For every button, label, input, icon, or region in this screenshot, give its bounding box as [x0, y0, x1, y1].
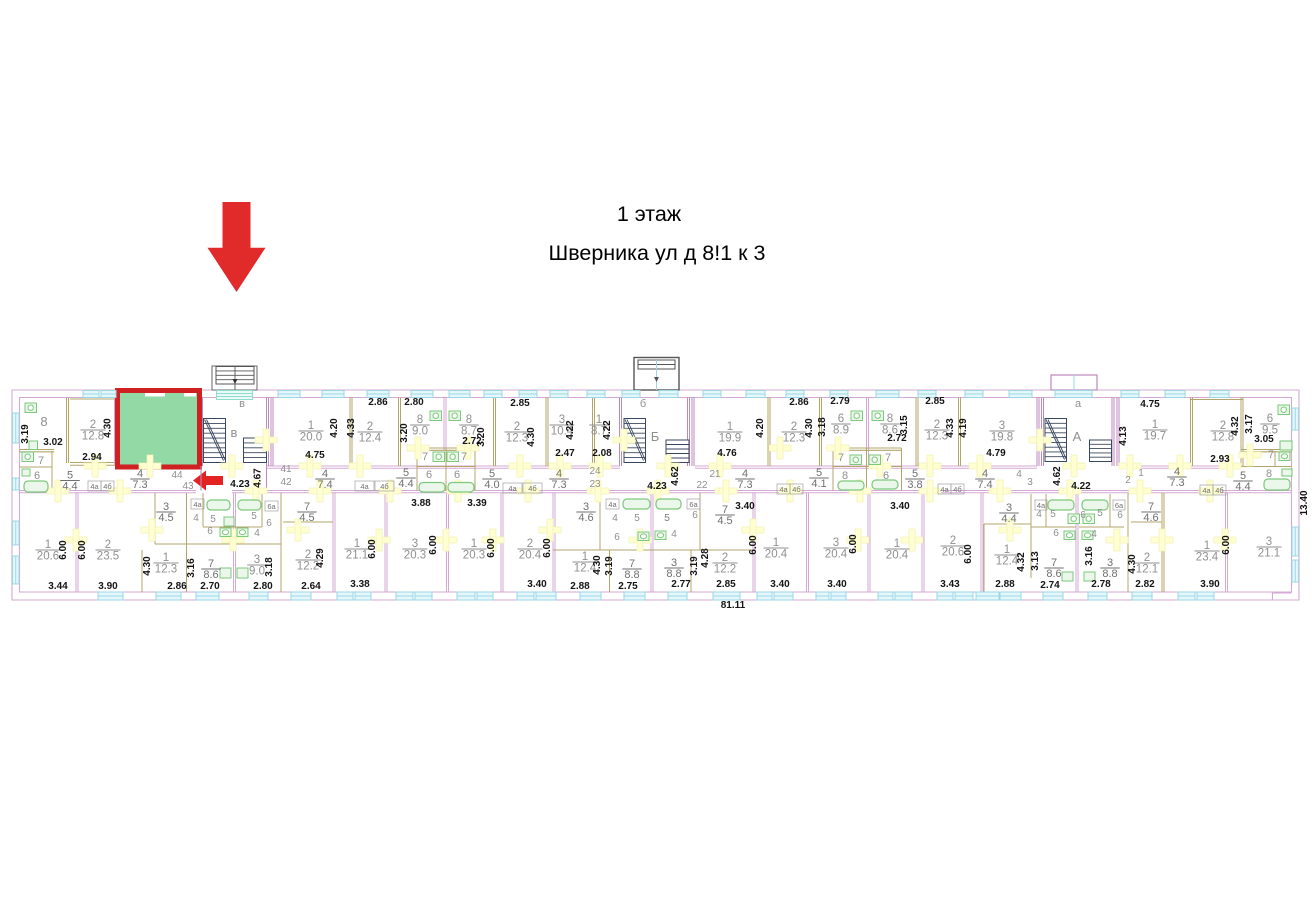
svg-text:4.22: 4.22: [602, 420, 613, 440]
svg-text:4а: 4а: [508, 484, 517, 493]
svg-text:3.19: 3.19: [604, 556, 615, 576]
svg-text:2.80: 2.80: [253, 581, 273, 592]
svg-text:2.88: 2.88: [570, 581, 590, 592]
svg-text:6: 6: [34, 470, 40, 482]
svg-text:6а: 6а: [1115, 501, 1124, 510]
svg-text:4.33: 4.33: [346, 418, 357, 438]
svg-text:4а: 4а: [608, 500, 617, 509]
svg-text:6.00: 6.00: [58, 540, 69, 560]
svg-text:3.05: 3.05: [1254, 434, 1274, 445]
svg-text:3.90: 3.90: [1200, 579, 1220, 590]
svg-text:21: 21: [709, 469, 721, 480]
svg-text:4.0: 4.0: [484, 479, 499, 491]
svg-text:9.0: 9.0: [412, 426, 428, 438]
svg-text:3.02: 3.02: [43, 437, 63, 448]
svg-text:4а: 4а: [193, 500, 202, 509]
svg-text:43: 43: [182, 481, 194, 492]
svg-text:Шверника ул д 8!1 к 3: Шверника ул д 8!1 к 3: [548, 241, 765, 265]
svg-text:8.6: 8.6: [203, 569, 218, 581]
svg-text:2.85: 2.85: [716, 579, 736, 590]
svg-text:4.22: 4.22: [565, 420, 576, 440]
svg-text:1: 1: [471, 538, 477, 550]
svg-text:1: 1: [45, 539, 51, 551]
svg-text:3.8: 3.8: [907, 479, 922, 491]
svg-text:22: 22: [696, 480, 708, 491]
svg-text:4.30: 4.30: [804, 418, 815, 438]
svg-text:4.30: 4.30: [592, 555, 603, 575]
svg-text:44: 44: [171, 470, 183, 481]
svg-text:1: 1: [308, 420, 314, 432]
svg-text:6.00: 6.00: [848, 534, 859, 554]
svg-text:8: 8: [842, 470, 848, 482]
svg-text:2.75: 2.75: [618, 581, 638, 592]
svg-text:12.3: 12.3: [783, 433, 805, 445]
svg-text:4.67: 4.67: [253, 468, 264, 488]
svg-text:3.16: 3.16: [1084, 546, 1095, 566]
svg-text:7: 7: [838, 452, 844, 464]
svg-text:6.00: 6.00: [428, 535, 439, 555]
svg-text:1: 1: [582, 551, 588, 563]
svg-text:4.5: 4.5: [717, 515, 732, 527]
svg-text:7: 7: [461, 451, 467, 463]
svg-text:6а: 6а: [689, 500, 698, 509]
svg-text:а: а: [1075, 398, 1082, 410]
svg-text:4.23: 4.23: [647, 481, 667, 492]
svg-text:8.8: 8.8: [624, 569, 639, 581]
svg-text:3.39: 3.39: [467, 498, 487, 509]
svg-text:4а: 4а: [1202, 486, 1211, 495]
svg-text:1: 1: [727, 421, 733, 433]
svg-text:6.00: 6.00: [963, 544, 974, 564]
svg-text:2: 2: [305, 549, 311, 561]
svg-text:12.4: 12.4: [359, 433, 382, 445]
svg-text:7.3: 7.3: [737, 479, 752, 491]
svg-text:3.43: 3.43: [940, 579, 960, 590]
svg-text:2.72: 2.72: [462, 436, 482, 447]
svg-text:2: 2: [722, 552, 728, 564]
svg-text:2: 2: [791, 421, 797, 433]
svg-text:4.75: 4.75: [305, 450, 325, 461]
svg-text:4а: 4а: [90, 482, 99, 491]
svg-text:7: 7: [1268, 449, 1274, 461]
svg-text:20.4: 20.4: [825, 549, 848, 561]
svg-text:4.32: 4.32: [1230, 416, 1241, 436]
svg-text:2.64: 2.64: [301, 581, 321, 592]
svg-text:6: 6: [207, 526, 213, 537]
svg-text:3.20: 3.20: [399, 423, 410, 443]
svg-text:2: 2: [514, 421, 520, 433]
svg-text:4б: 4б: [792, 485, 800, 494]
svg-text:3.16: 3.16: [186, 558, 197, 578]
svg-text:5: 5: [251, 511, 257, 522]
svg-text:4.79: 4.79: [986, 448, 1006, 459]
svg-text:7: 7: [38, 455, 44, 467]
svg-text:3.90: 3.90: [98, 581, 118, 592]
svg-text:3: 3: [1027, 477, 1033, 488]
svg-text:1: 1: [773, 537, 779, 549]
svg-text:2.74: 2.74: [1040, 580, 1060, 591]
svg-text:6.00: 6.00: [1221, 535, 1232, 555]
svg-text:8: 8: [40, 414, 47, 429]
svg-text:4.4: 4.4: [1235, 481, 1250, 493]
svg-text:12.1: 12.1: [1136, 564, 1158, 576]
svg-text:4.6: 4.6: [1143, 512, 1158, 524]
svg-text:6: 6: [266, 518, 272, 529]
svg-text:2.93: 2.93: [1210, 454, 1230, 465]
svg-text:3.13: 3.13: [1030, 551, 1041, 571]
svg-text:3.40: 3.40: [827, 579, 847, 590]
svg-text:12.3: 12.3: [506, 433, 528, 445]
svg-text:4.76: 4.76: [717, 448, 737, 459]
svg-text:2: 2: [934, 419, 940, 431]
svg-text:4: 4: [1091, 529, 1097, 540]
svg-text:19.9: 19.9: [719, 433, 741, 445]
svg-text:6: 6: [1080, 510, 1086, 521]
svg-text:4б: 4б: [1215, 486, 1223, 495]
svg-text:3.15: 3.15: [899, 415, 910, 435]
svg-text:1: 1: [894, 538, 900, 550]
svg-text:5: 5: [1097, 508, 1103, 519]
svg-text:4.30: 4.30: [103, 418, 114, 438]
svg-text:13.40: 13.40: [1299, 490, 1310, 515]
svg-text:20.6: 20.6: [942, 547, 964, 559]
svg-text:8.6: 8.6: [1046, 568, 1061, 580]
svg-text:4.6: 4.6: [578, 512, 593, 524]
svg-text:7.3: 7.3: [551, 479, 566, 491]
svg-text:Б: Б: [651, 429, 660, 444]
svg-text:2: 2: [950, 535, 956, 547]
svg-text:5: 5: [664, 513, 670, 524]
svg-text:6: 6: [426, 469, 432, 481]
svg-text:6: 6: [1053, 528, 1059, 539]
svg-text:2.77: 2.77: [671, 579, 691, 590]
svg-text:20.3: 20.3: [463, 550, 485, 562]
svg-text:2.86: 2.86: [167, 581, 187, 592]
svg-text:4.28: 4.28: [700, 548, 711, 568]
svg-text:в: в: [239, 398, 245, 410]
svg-text:6: 6: [1117, 510, 1123, 521]
svg-text:6: 6: [1267, 413, 1273, 425]
svg-text:4б: 4б: [380, 482, 388, 491]
svg-text:б: б: [640, 398, 646, 410]
svg-text:1: 1: [1138, 468, 1144, 479]
svg-text:6: 6: [614, 532, 620, 543]
svg-text:1: 1: [1204, 540, 1210, 552]
svg-text:9.0: 9.0: [249, 566, 265, 578]
svg-text:5: 5: [634, 513, 640, 524]
svg-text:4.32: 4.32: [1016, 552, 1027, 572]
svg-text:2: 2: [1125, 475, 1131, 486]
svg-text:2: 2: [527, 538, 533, 550]
svg-text:24: 24: [589, 466, 601, 477]
svg-text:6: 6: [454, 469, 460, 481]
svg-text:А: А: [1073, 429, 1082, 444]
svg-text:4.33: 4.33: [945, 418, 956, 438]
svg-text:6.00: 6.00: [542, 538, 553, 558]
svg-text:2.88: 2.88: [995, 579, 1015, 590]
svg-text:3.40: 3.40: [770, 579, 790, 590]
svg-text:2: 2: [1220, 420, 1226, 432]
svg-text:8: 8: [417, 414, 423, 426]
svg-text:6.00: 6.00: [486, 538, 497, 558]
svg-text:4.4: 4.4: [1001, 513, 1016, 525]
svg-text:2.70: 2.70: [200, 581, 220, 592]
svg-text:3.18: 3.18: [264, 557, 275, 577]
svg-text:2.72: 2.72: [887, 433, 907, 444]
svg-text:1 этаж: 1 этаж: [617, 202, 682, 226]
svg-text:3: 3: [999, 420, 1005, 432]
svg-text:2: 2: [1144, 552, 1150, 564]
svg-text:7.3: 7.3: [132, 479, 147, 491]
svg-text:7.4: 7.4: [977, 479, 992, 491]
svg-text:3.17: 3.17: [1244, 414, 1255, 434]
svg-text:4.13: 4.13: [1118, 426, 1129, 446]
svg-text:7: 7: [885, 452, 891, 464]
svg-text:4а: 4а: [940, 485, 949, 494]
svg-text:4.4: 4.4: [62, 481, 77, 493]
svg-text:4.22: 4.22: [1071, 481, 1091, 492]
svg-text:20.6: 20.6: [37, 551, 59, 563]
svg-text:2: 2: [90, 419, 96, 431]
svg-text:4а: 4а: [779, 485, 788, 494]
svg-text:6.00: 6.00: [77, 540, 88, 560]
svg-text:6.00: 6.00: [748, 535, 759, 555]
svg-text:4а: 4а: [360, 482, 369, 491]
svg-text:8.9: 8.9: [833, 425, 849, 437]
svg-text:23: 23: [589, 479, 601, 490]
svg-text:2.80: 2.80: [404, 397, 424, 408]
svg-text:42: 42: [280, 477, 292, 488]
svg-text:41: 41: [280, 464, 292, 475]
svg-text:8: 8: [887, 413, 893, 425]
svg-text:4.5: 4.5: [299, 512, 314, 524]
svg-text:2.47: 2.47: [555, 448, 575, 459]
svg-text:2.85: 2.85: [925, 396, 945, 407]
svg-text:2.82: 2.82: [1135, 579, 1155, 590]
svg-text:3.18: 3.18: [817, 417, 828, 437]
svg-text:23.5: 23.5: [97, 551, 119, 563]
svg-text:1: 1: [163, 552, 169, 564]
svg-text:4: 4: [1016, 469, 1022, 480]
svg-text:20.0: 20.0: [300, 432, 322, 444]
svg-text:3.44: 3.44: [48, 581, 68, 592]
svg-text:4: 4: [254, 528, 260, 539]
svg-text:3.19: 3.19: [20, 424, 31, 444]
svg-text:5: 5: [1050, 509, 1056, 520]
svg-text:3.38: 3.38: [350, 579, 370, 590]
svg-text:4: 4: [671, 529, 677, 540]
svg-text:4.62: 4.62: [1052, 466, 1063, 486]
svg-text:7.4: 7.4: [317, 479, 332, 491]
svg-text:3: 3: [412, 538, 418, 550]
svg-text:20.4: 20.4: [886, 550, 909, 562]
svg-text:12.8: 12.8: [82, 431, 104, 443]
svg-text:4.23: 4.23: [230, 479, 250, 490]
svg-text:2.85: 2.85: [510, 398, 530, 409]
svg-text:1: 1: [1004, 544, 1010, 556]
svg-text:4: 4: [612, 513, 618, 524]
svg-text:4.30: 4.30: [526, 427, 537, 447]
svg-text:21.1: 21.1: [346, 550, 368, 562]
svg-text:4: 4: [1036, 509, 1042, 520]
svg-text:19.7: 19.7: [1144, 431, 1166, 443]
svg-text:4.75: 4.75: [1140, 399, 1160, 410]
svg-text:4б: 4б: [103, 482, 111, 491]
svg-text:6: 6: [692, 510, 698, 521]
svg-text:6а: 6а: [267, 502, 276, 511]
svg-text:4.30: 4.30: [142, 556, 153, 576]
svg-text:4.20: 4.20: [329, 418, 340, 438]
svg-text:3.19: 3.19: [689, 556, 700, 576]
svg-text:8: 8: [1266, 468, 1272, 480]
svg-text:2.78: 2.78: [1091, 579, 1111, 590]
svg-text:3: 3: [254, 554, 260, 566]
svg-text:8: 8: [466, 414, 472, 426]
svg-text:7: 7: [422, 451, 428, 463]
svg-text:2.79: 2.79: [830, 396, 850, 407]
svg-text:20.3: 20.3: [404, 550, 426, 562]
svg-text:4.1: 4.1: [811, 478, 826, 490]
svg-text:4б: 4б: [528, 484, 536, 493]
svg-text:3.40: 3.40: [890, 501, 910, 512]
svg-text:2.86: 2.86: [789, 397, 809, 408]
svg-text:6: 6: [883, 470, 889, 482]
svg-text:4б: 4б: [953, 485, 961, 494]
svg-text:2.08: 2.08: [592, 448, 612, 459]
svg-text:1: 1: [354, 538, 360, 550]
svg-text:2.94: 2.94: [82, 452, 102, 463]
svg-text:23.4: 23.4: [1196, 552, 1219, 564]
svg-text:5: 5: [210, 514, 216, 525]
svg-text:7.3: 7.3: [1169, 477, 1184, 489]
svg-text:6.00: 6.00: [367, 539, 378, 559]
svg-text:4.5: 4.5: [158, 512, 173, 524]
svg-text:3: 3: [833, 537, 839, 549]
svg-text:12.2: 12.2: [714, 564, 736, 576]
svg-text:19.8: 19.8: [991, 432, 1013, 444]
svg-text:81.11: 81.11: [721, 600, 746, 611]
svg-text:3: 3: [1266, 536, 1272, 548]
svg-text:4.4: 4.4: [398, 478, 413, 490]
svg-text:3.40: 3.40: [527, 579, 547, 590]
svg-text:3.40: 3.40: [735, 501, 755, 512]
svg-text:20.4: 20.4: [765, 549, 788, 561]
svg-text:12.3: 12.3: [155, 564, 177, 576]
svg-text:1: 1: [1152, 419, 1158, 431]
svg-text:4.62: 4.62: [670, 466, 681, 486]
svg-text:2: 2: [105, 539, 111, 551]
svg-text:4: 4: [193, 513, 199, 524]
svg-text:4.20: 4.20: [755, 418, 766, 438]
svg-text:4.19: 4.19: [958, 418, 969, 438]
svg-text:4.29: 4.29: [315, 548, 326, 568]
svg-text:20.4: 20.4: [519, 550, 542, 562]
svg-text:6: 6: [838, 413, 844, 425]
svg-text:21.1: 21.1: [1258, 548, 1280, 560]
svg-text:2: 2: [367, 421, 373, 433]
svg-text:3.88: 3.88: [411, 498, 431, 509]
svg-text:2.86: 2.86: [368, 397, 388, 408]
svg-text:в: в: [231, 425, 238, 440]
